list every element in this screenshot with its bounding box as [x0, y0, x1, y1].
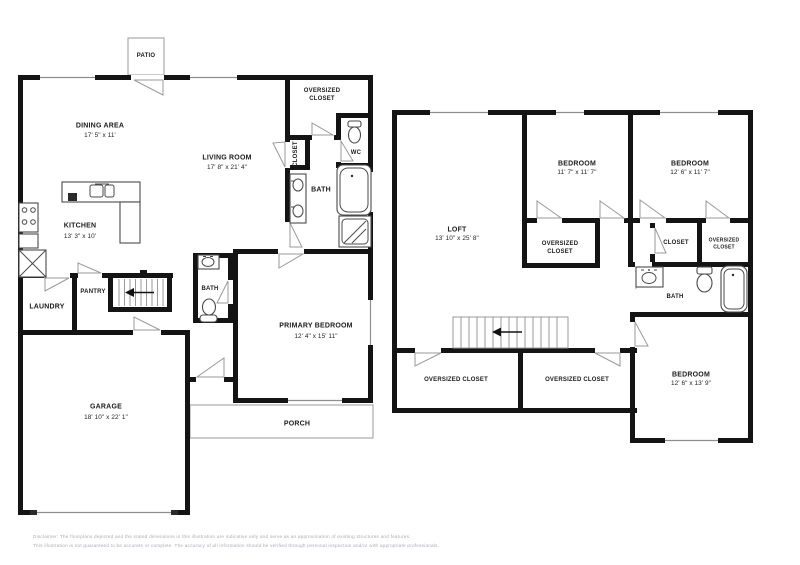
- porch-label: PORCH: [284, 419, 310, 428]
- garage-entry-door-swing-icon: [134, 317, 160, 330]
- bathtub-icon: [337, 165, 371, 215]
- primary-bedroom-door-swing-icon: [279, 254, 303, 268]
- oversized-closet-bottom-left-label: OVERSIZED CLOSET: [424, 377, 488, 385]
- dining-area-label: DINING AREA: [76, 121, 124, 130]
- closet-hall-label: CLOSET: [663, 240, 689, 248]
- pantry-door-swing-icon: [78, 263, 101, 273]
- floor1-plan: [18, 38, 373, 515]
- stair-arrow-icon: [125, 288, 154, 297]
- bath2-sink-icon: [636, 267, 663, 287]
- garage-dims: 18' 10" x 22' 1": [84, 414, 128, 422]
- porch-outline: [190, 405, 373, 438]
- wc-toilet-icon: [348, 121, 361, 143]
- shower-icon: [339, 216, 371, 247]
- hall-bath-sink-icon: [198, 255, 219, 269]
- living-room-label: LIVING ROOM: [202, 153, 251, 162]
- water-heater-icon: [19, 250, 46, 277]
- refrigerator-icon: [19, 234, 38, 248]
- wc-label: WC: [351, 150, 361, 158]
- bath-door-swing-icon: [290, 223, 302, 247]
- closet-bm-door-swing-icon: [595, 353, 620, 366]
- loft-label: LOFT: [447, 225, 466, 234]
- bedroom-top-middle-dims: 11' 7" x 11' 7": [557, 169, 596, 177]
- kitchen-dims: 13' 3" x 10': [64, 233, 96, 241]
- pantry-label: PANTRY: [80, 289, 105, 297]
- hall-bath-toilet-icon: [200, 299, 217, 322]
- primary-bedroom-label: PRIMARY BEDROOM: [279, 321, 352, 330]
- oversized-closet-small-door-swing-icon: [706, 201, 729, 218]
- laundry-label: LAUNDRY: [29, 302, 64, 311]
- oversized-closet-small-label: OVERSIZED CLOSET: [709, 238, 740, 251]
- primary-bedroom-dims: 12' 4" x 15' 11": [294, 333, 337, 341]
- bedroom1-door-swing-icon: [600, 201, 624, 218]
- garage-label: GARAGE: [90, 402, 122, 411]
- bedroom2-door-swing-icon: [640, 200, 665, 218]
- floorplan-canvas: [0, 0, 800, 565]
- kitchen-label: KITCHEN: [64, 221, 97, 230]
- disclaimer-line-1: Disclaimer: The floorplans depicted and …: [33, 534, 411, 539]
- closet-label: CLOSET: [293, 141, 301, 167]
- closet-bl-door-swing-icon: [415, 353, 441, 366]
- bath2-toilet-icon: [697, 267, 712, 292]
- bedroom-bottom-right-label: BEDROOM: [672, 370, 710, 379]
- patio-label: PATIO: [137, 53, 155, 61]
- floorplan-page: PATIO DINING AREA 17' 5" x 11' LIVING RO…: [0, 0, 800, 565]
- bedroom-top-right-dims: 12' 6" x 11' 7": [670, 169, 710, 177]
- dining-area-dims: 17' 5" x 11': [84, 132, 116, 140]
- hall-bath-door-swing-icon: [217, 281, 228, 303]
- living-room-dims: 17' 8" x 21' 4": [207, 164, 247, 172]
- oversized-closet-middle-label: OVERSIZED CLOSET: [542, 241, 578, 257]
- bedroom-top-right-label: BEDROOM: [671, 159, 709, 168]
- bath-hall-label: BATH: [201, 286, 218, 294]
- disclaimer-line-2: This illustration is not guaranteed to b…: [33, 543, 439, 548]
- floor1-staircase: [119, 279, 163, 306]
- floor1-walls: [18, 75, 373, 515]
- oversized-closet-door-swing-icon: [312, 123, 333, 135]
- stove-icon: [19, 203, 38, 232]
- dishwasher-icon: [68, 193, 77, 201]
- front-door-swing-icon: [197, 358, 224, 377]
- bath-upper-label: BATH: [311, 185, 331, 194]
- oversized-closet-middle-door-swing-icon: [537, 201, 561, 218]
- laundry-door-swing-icon: [45, 278, 69, 291]
- floor2-staircase: [453, 317, 568, 348]
- closet-door-swing-icon: [273, 142, 285, 167]
- loft-dims: 13' 10" x 25' 8": [435, 235, 479, 243]
- patio-door-swing-icon: [134, 80, 163, 95]
- oversized-closet-bottom-middle-label: OVERSIZED CLOSET: [545, 377, 609, 385]
- garage-door: [30, 510, 178, 515]
- bath2-bathtub-icon: [721, 266, 747, 312]
- double-sink-icon: [290, 174, 306, 223]
- bedroom-bottom-right-dims: 12' 6" x 13' 9": [671, 380, 711, 388]
- bedroom-top-middle-label: BEDROOM: [558, 159, 596, 168]
- bath2-label: BATH: [666, 294, 683, 302]
- bedroom3-door-swing-icon: [635, 322, 648, 346]
- oversized-closet-label: OVERSIZED CLOSET: [304, 88, 340, 104]
